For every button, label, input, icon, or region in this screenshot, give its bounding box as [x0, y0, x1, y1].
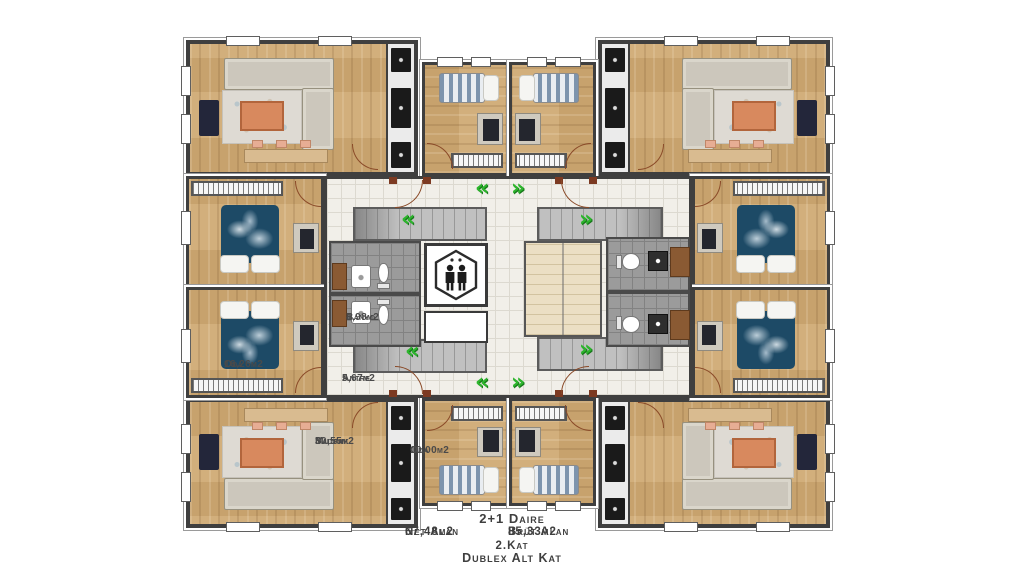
door-swing-arc	[352, 402, 378, 428]
kitchen-counter-strip	[602, 402, 630, 524]
window	[555, 57, 581, 67]
room-area: 5,67m2	[342, 373, 375, 384]
window	[181, 114, 191, 144]
kitchen-counter-strip	[602, 44, 630, 172]
window	[825, 472, 835, 502]
stairs-upper-left	[353, 207, 487, 241]
window	[527, 57, 547, 67]
stairs-direction-arrow-left: «	[401, 209, 413, 231]
bed-pillow	[736, 255, 765, 273]
coffee-table	[732, 101, 776, 131]
bedroom-right-upper	[692, 176, 830, 287]
apartment-living-room-top-right	[598, 40, 830, 176]
unit-type-title: 2+1 Daire	[412, 511, 612, 526]
dining-chair	[300, 140, 311, 148]
door-jamb	[423, 177, 431, 184]
single-bed	[439, 465, 485, 495]
sofa-vertical	[302, 422, 334, 480]
window	[825, 211, 835, 245]
window	[181, 211, 191, 245]
bed-pillow	[519, 75, 535, 101]
desk-chair	[483, 430, 499, 452]
dining-table	[688, 149, 772, 163]
kitchen-sink-counter	[605, 444, 625, 482]
coffee-table	[240, 101, 284, 131]
desk	[293, 321, 319, 351]
bed-pillow	[251, 255, 280, 273]
door-swing-arc	[695, 181, 721, 207]
sofa-horizontal	[224, 58, 334, 90]
stove	[605, 48, 625, 72]
desk	[515, 113, 541, 145]
coffee-table	[240, 438, 284, 468]
bathroom-right-upper	[606, 237, 690, 292]
window	[437, 501, 463, 511]
bed-pillow	[483, 75, 499, 101]
stairs-direction-arrow-right: »	[511, 372, 523, 394]
bed-pillow	[220, 255, 249, 273]
bed-pillow	[220, 301, 249, 319]
gross-area-value: 85,33m2	[508, 526, 557, 539]
apartment-living-room-bottom-right	[598, 398, 830, 528]
net-area-value: 67,48m2	[405, 526, 454, 539]
toilet	[622, 253, 640, 270]
wardrobe	[515, 153, 567, 168]
floor-detail: Dublex Alt Kat	[432, 551, 592, 565]
stairs-direction-arrow-left: «	[475, 178, 487, 200]
window	[181, 424, 191, 454]
door-swing-arc	[427, 405, 453, 431]
tv-unit	[199, 434, 219, 470]
bedroom-center-top-left	[422, 62, 509, 176]
door-swing-arc	[565, 405, 591, 431]
tv-unit	[797, 100, 817, 136]
stove	[391, 48, 411, 72]
bathroom-vanity	[332, 300, 347, 327]
window	[825, 66, 835, 96]
desk-chair	[702, 229, 716, 249]
stairs-upper-right	[537, 207, 663, 241]
door-swing-arc	[295, 181, 321, 207]
tv-unit	[797, 434, 817, 470]
kitchen-counter	[605, 406, 625, 430]
window	[664, 522, 698, 532]
wardrobe	[515, 406, 567, 421]
dining-chair	[729, 422, 740, 430]
dining-table	[244, 149, 328, 163]
main-staircase	[524, 241, 602, 337]
stairs-direction-arrow-right: »	[579, 209, 591, 231]
kitchen-sink-counter	[391, 444, 411, 482]
stairs-direction-arrow-right: »	[579, 339, 591, 361]
window	[756, 522, 790, 532]
door-swing-arc	[695, 367, 721, 393]
tv-unit	[199, 100, 219, 136]
door-jamb	[589, 390, 597, 397]
sofa-horizontal	[224, 478, 334, 510]
desk-chair	[702, 325, 716, 345]
room-area: 16,26m2	[224, 359, 263, 370]
dining-chair	[729, 140, 740, 148]
wardrobe	[733, 378, 825, 393]
door-swing-arc	[295, 367, 321, 393]
kitchen-counter	[391, 406, 411, 430]
door-swing-arc	[395, 180, 423, 208]
stairs-direction-arrow-right: »	[511, 178, 523, 200]
toilet-tank	[377, 283, 390, 289]
window	[226, 36, 260, 46]
bedroom-right-lower	[692, 287, 830, 398]
bathroom-sink-dark	[648, 314, 668, 334]
door-swing-arc	[427, 143, 453, 169]
elevator-shaft	[424, 311, 488, 343]
window	[318, 522, 352, 532]
wardrobe	[191, 181, 283, 196]
dining-chair	[276, 422, 287, 430]
desk-chair	[483, 119, 499, 141]
bedroom-left-upper	[186, 176, 324, 287]
room-area: 4,98m2	[346, 312, 379, 323]
dining-chair	[252, 422, 263, 430]
window	[756, 36, 790, 46]
bed-pillow	[767, 301, 796, 319]
bathroom-sink-dark	[648, 251, 668, 271]
apartment-living-room-bottom-left	[186, 398, 418, 528]
bed-pillow	[519, 467, 535, 493]
kitchen-counter	[391, 142, 411, 168]
bathroom-left-upper	[329, 241, 421, 294]
bathroom-counter	[670, 310, 690, 340]
dining-chair	[753, 422, 764, 430]
double-bed	[737, 311, 795, 369]
floor-plan-canvas: « « » » « « » » Oda 16,26m2 Banyo 4,98m2…	[0, 0, 1024, 576]
apartment-living-room-top-left	[186, 40, 418, 176]
bed-pillow	[251, 301, 280, 319]
bedroom-center-top-right	[509, 62, 596, 176]
desk-chair	[300, 229, 314, 249]
window	[664, 36, 698, 46]
door-swing-arc	[638, 402, 664, 428]
window	[226, 522, 260, 532]
desk	[697, 321, 723, 351]
wardrobe	[191, 378, 283, 393]
desk-chair	[519, 119, 535, 141]
window	[471, 501, 491, 511]
stairs-direction-arrow-left: «	[405, 341, 417, 363]
bed-pillow	[736, 301, 765, 319]
bedroom-left-lower	[186, 287, 324, 398]
dining-chair	[276, 140, 287, 148]
window	[555, 501, 581, 511]
kitchen-sink-counter	[391, 88, 411, 128]
desk	[697, 223, 723, 253]
door-swing-arc	[638, 144, 664, 170]
single-bed	[439, 73, 485, 103]
dining-chair	[300, 422, 311, 430]
bedroom-center-bottom-right	[509, 398, 596, 506]
dining-table	[688, 408, 772, 422]
toilet	[378, 263, 389, 283]
window	[437, 57, 463, 67]
window	[825, 329, 835, 363]
desk	[293, 223, 319, 253]
dining-chair	[753, 140, 764, 148]
kitchen-sink-counter	[605, 88, 625, 128]
bathroom-counter	[670, 247, 690, 277]
kitchen-counter	[605, 142, 625, 168]
window	[471, 57, 491, 67]
kitchen-counter-strip	[386, 44, 414, 172]
coffee-table	[732, 438, 776, 468]
window	[181, 472, 191, 502]
window	[527, 501, 547, 511]
bathroom-right-lower	[606, 292, 690, 347]
bed-pillow	[483, 467, 499, 493]
wardrobe	[451, 153, 503, 168]
sofa-horizontal	[682, 478, 792, 510]
door-swing-arc	[561, 180, 589, 208]
kitchen-counter-strip	[386, 402, 414, 524]
bed-pillow	[767, 255, 796, 273]
window	[318, 36, 352, 46]
wardrobe	[733, 181, 825, 196]
elevator-two-people-icon	[433, 249, 479, 301]
wardrobe	[451, 406, 503, 421]
door-jamb	[589, 177, 597, 184]
toilet	[622, 316, 640, 333]
door-swing-arc	[352, 144, 378, 170]
desk	[477, 427, 503, 457]
window	[825, 114, 835, 144]
dining-chair	[705, 422, 716, 430]
door-jamb	[423, 390, 431, 397]
sofa-vertical	[682, 422, 714, 480]
single-bed	[533, 73, 579, 103]
bathroom-vanity	[332, 263, 347, 290]
dining-chair	[705, 140, 716, 148]
bathroom-sink	[351, 265, 371, 288]
desk	[515, 427, 541, 457]
sofa-horizontal	[682, 58, 792, 90]
stairs-direction-arrow-left: «	[475, 372, 487, 394]
window	[825, 424, 835, 454]
window	[181, 66, 191, 96]
toilet	[378, 305, 389, 325]
room-area: 10,00m2	[410, 445, 449, 456]
desk-chair	[519, 430, 535, 452]
dining-table	[244, 408, 328, 422]
desk-chair	[300, 325, 314, 345]
window	[181, 329, 191, 363]
elevator-cabin	[424, 243, 488, 307]
door-swing-arc	[565, 143, 591, 169]
central-core-hallway: « « » » « « » »	[324, 176, 692, 398]
single-bed	[533, 465, 579, 495]
stove	[391, 498, 411, 520]
dining-chair	[252, 140, 263, 148]
room-area: 30,55m2	[315, 436, 354, 447]
desk	[477, 113, 503, 145]
